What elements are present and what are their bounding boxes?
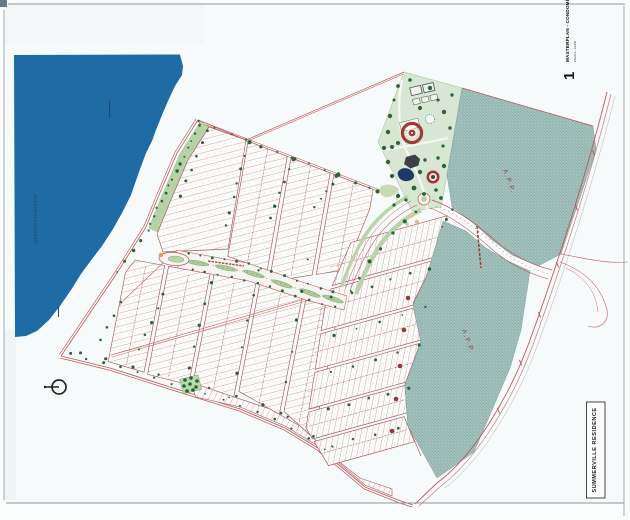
svg-text:ESCALA - 1/1000: ESCALA - 1/1000 <box>573 40 577 62</box>
svg-text:1: 1 <box>561 72 578 80</box>
svg-text:MASTERPLAN - CONDOMÍNIO: MASTERPLAN - CONDOMÍNIO <box>563 0 570 62</box>
svg-text:SUMMERVILLE RESIDENCE: SUMMERVILLE RESIDENCE <box>592 407 598 492</box>
svg-text:OCEANO ATLÂNTICO: OCEANO ATLÂNTICO <box>33 194 38 243</box>
